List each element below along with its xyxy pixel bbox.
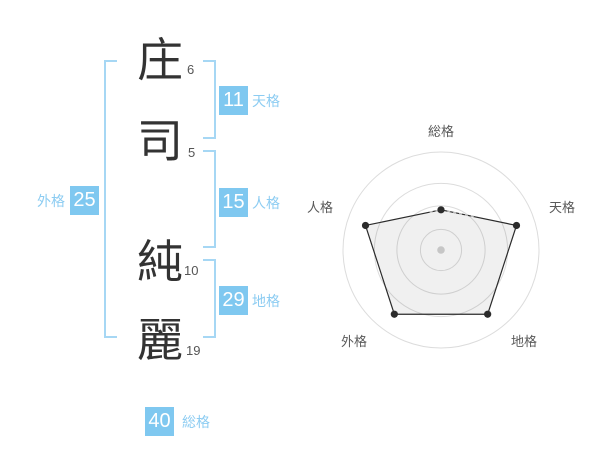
gaikaku-label: 外格 — [37, 194, 65, 208]
radar-axis-jinkaku: 人格 — [307, 201, 333, 214]
stroke-count-char-4: 19 — [186, 344, 200, 357]
radar-axis-gaikaku: 外格 — [341, 335, 367, 348]
jinkaku-value-box: 15 — [219, 188, 248, 217]
name-fortune-panel: 庄 司 純 麗 6 5 10 19 11 15 29 25 40 天格 人格 地… — [0, 0, 600, 470]
chikaku-label: 地格 — [252, 294, 280, 308]
stroke-count-char-1: 6 — [187, 63, 194, 76]
chikaku-bracket — [203, 259, 216, 338]
radar-axis-tenkaku: 天格 — [549, 201, 575, 214]
gaikaku-value-box: 25 — [70, 186, 99, 215]
jinkaku-label: 人格 — [252, 196, 280, 210]
gaikaku-bracket — [104, 60, 117, 338]
name-char-1: 庄 — [126, 37, 194, 83]
soukaku-value-box: 40 — [145, 407, 174, 436]
soukaku-label: 総格 — [182, 415, 210, 429]
stroke-count-char-2: 5 — [188, 146, 195, 159]
stroke-count-char-3: 10 — [184, 264, 198, 277]
tenkaku-label: 天格 — [252, 94, 280, 108]
radar-axis-chikaku: 地格 — [511, 335, 537, 348]
name-char-3: 純 — [126, 239, 194, 285]
radar-chart-canvas — [300, 100, 600, 400]
fortune-radar-chart: 総格 天格 地格 外格 人格 — [300, 100, 600, 400]
name-char-2: 司 — [126, 118, 194, 164]
tenkaku-bracket — [203, 60, 216, 139]
tenkaku-value-box: 11 — [219, 86, 248, 115]
name-char-4: 麗 — [126, 317, 194, 363]
radar-axis-soukaku: 総格 — [428, 125, 454, 138]
chikaku-value-box: 29 — [219, 286, 248, 315]
jinkaku-bracket — [203, 150, 216, 248]
